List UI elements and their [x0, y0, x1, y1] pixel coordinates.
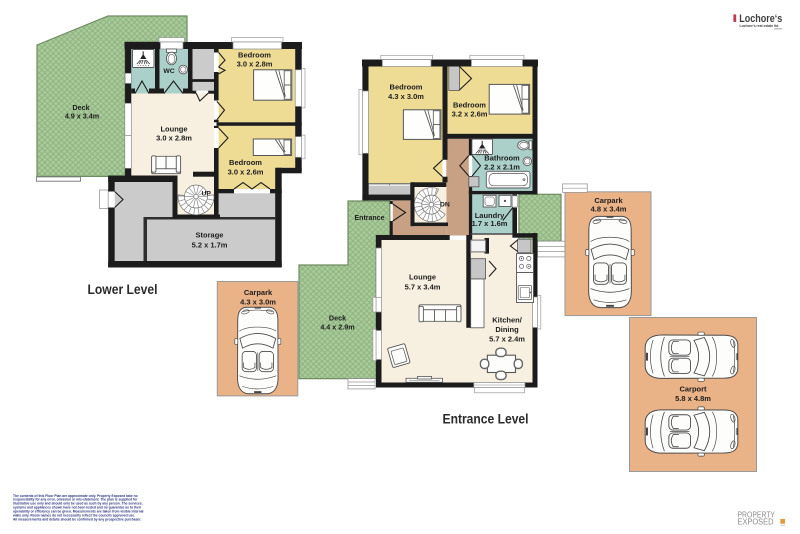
svg-text:Entrance: Entrance: [355, 215, 385, 222]
svg-text:EXPOSED: EXPOSED: [738, 517, 774, 526]
svg-text:3.0 x 2.8m: 3.0 x 2.8m: [237, 60, 273, 69]
svg-text:MREINZ: MREINZ: [774, 29, 783, 31]
svg-text:2.2 x 2.1m: 2.2 x 2.1m: [484, 163, 520, 172]
svg-text:Deck: Deck: [329, 314, 346, 323]
svg-text:3.0 x 2.8m: 3.0 x 2.8m: [156, 134, 192, 143]
svg-text:5.8 x 4.8m: 5.8 x 4.8m: [675, 394, 711, 403]
svg-text:Bedroom: Bedroom: [229, 158, 262, 167]
svg-text:4.8 x 3.4m: 4.8 x 3.4m: [591, 205, 627, 214]
svg-text:1.7 x 1.6m: 1.7 x 1.6m: [472, 219, 508, 228]
svg-text:5.7 x 3.4m: 5.7 x 3.4m: [405, 283, 441, 292]
svg-text:Lounge: Lounge: [409, 273, 436, 282]
svg-text:5.7 x 2.4m: 5.7 x 2.4m: [489, 335, 525, 344]
svg-text:Lounge: Lounge: [160, 125, 187, 134]
svg-text:Bedroom: Bedroom: [453, 101, 486, 110]
svg-text:4.3 x 3.0m: 4.3 x 3.0m: [240, 298, 276, 307]
svg-text:3.0 x 2.6m: 3.0 x 2.6m: [228, 168, 264, 177]
svg-text:Dining: Dining: [495, 325, 519, 334]
svg-text:Bedroom: Bedroom: [390, 83, 423, 92]
svg-text:All measurements and details s: All measurements and details should be c…: [13, 517, 141, 521]
svg-text:Bedroom: Bedroom: [238, 51, 271, 60]
svg-text:3.2 x 2.6m: 3.2 x 2.6m: [452, 110, 488, 119]
svg-text:UP: UP: [202, 190, 212, 197]
svg-text:Bathroom: Bathroom: [484, 154, 520, 163]
svg-text:Entrance Level: Entrance Level: [443, 412, 529, 427]
svg-text:Carpark: Carpark: [244, 288, 273, 297]
svg-text:4.4 x 2.9m: 4.4 x 2.9m: [320, 323, 354, 332]
svg-text:Lower Level: Lower Level: [88, 282, 158, 297]
svg-text:Storage: Storage: [196, 231, 224, 240]
svg-text:DN: DN: [440, 202, 450, 209]
svg-text:WC: WC: [163, 68, 174, 75]
svg-text:Kitchen/: Kitchen/: [492, 316, 523, 325]
svg-text:Lochore’s real estate ltd: Lochore’s real estate ltd: [740, 24, 779, 28]
svg-text:5.2 x 1.7m: 5.2 x 1.7m: [192, 241, 228, 250]
svg-text:4.9 x 3.4m: 4.9 x 3.4m: [65, 112, 99, 121]
svg-text:Carport: Carport: [679, 385, 707, 394]
svg-text:4.3 x 3.0m: 4.3 x 3.0m: [388, 92, 424, 101]
